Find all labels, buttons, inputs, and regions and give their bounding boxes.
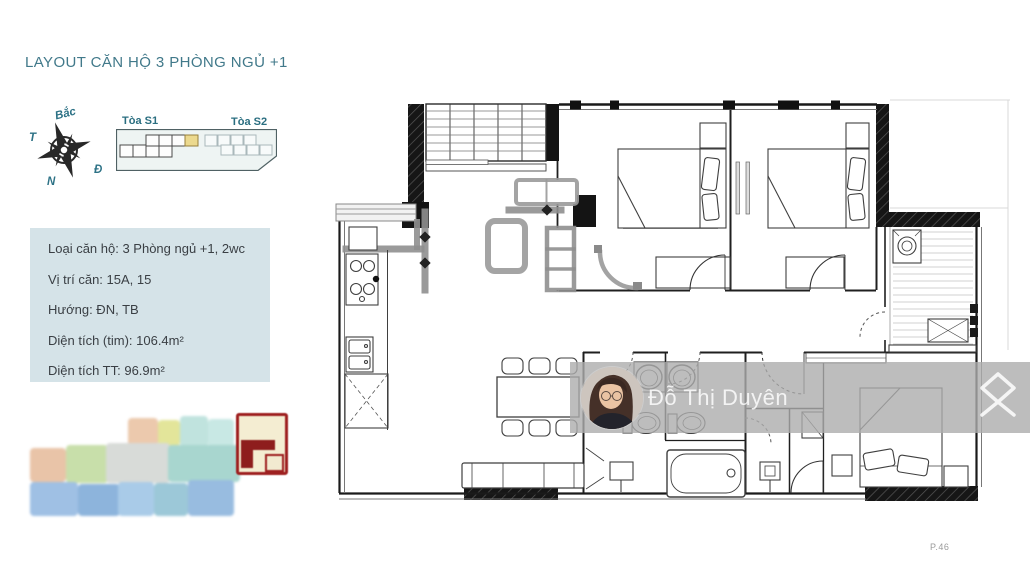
watermark-username: Đỗ Thị Duyên [648,362,788,433]
building-floor-diagram [28,405,284,533]
info-area-tim: Diện tích (tim): 106.4m² [48,333,184,348]
tower-s2-label: Tòa S2 [231,116,267,128]
page-title: LAYOUT CĂN HỘ 3 PHÒNG NGỦ +1 [25,54,288,71]
bedroom-2-furniture [768,123,869,288]
info-apartment-type: Loại căn hộ: 3 Phòng ngủ +1, 2wc [48,241,245,256]
info-direction: Hướng: ĐN, TB [48,302,139,317]
page-canvas: LAYOUT CĂN HỘ 3 PHÒNG NGỦ +1 Bắc T Đ N T… [0,0,1030,579]
site-map [116,129,277,171]
watermark-avatar [581,367,643,429]
balcony-door-arc [860,312,885,337]
info-area-tt: Diện tích TT: 96.9m² [48,363,165,378]
watermark-brand-logo-icon [972,371,1024,423]
page-number: P.46 [930,542,949,552]
compass-west-label: T [29,132,36,144]
dining-table-and-chairs [497,358,579,436]
sofa [462,463,584,488]
info-unit-position: Vị trí căn: 15A, 15 [48,272,151,287]
floor-plan [332,88,1014,533]
compass-south-label: N [47,176,55,188]
apartment-info-box: Loại căn hộ: 3 Phòng ngủ +1, 2wc Vị trí … [30,228,270,382]
balcony [860,230,978,352]
compass-east-label: Đ [94,164,102,176]
highlighted-unit [185,135,198,146]
loggia-louver-window [426,104,546,171]
kitchen-fixtures [345,227,388,430]
tower-s1-label: Tòa S1 [122,115,158,127]
watermark: Đỗ Thị Duyên [570,362,1030,433]
avatar-portrait-image [581,367,643,429]
selected-unit-outline [236,413,288,475]
